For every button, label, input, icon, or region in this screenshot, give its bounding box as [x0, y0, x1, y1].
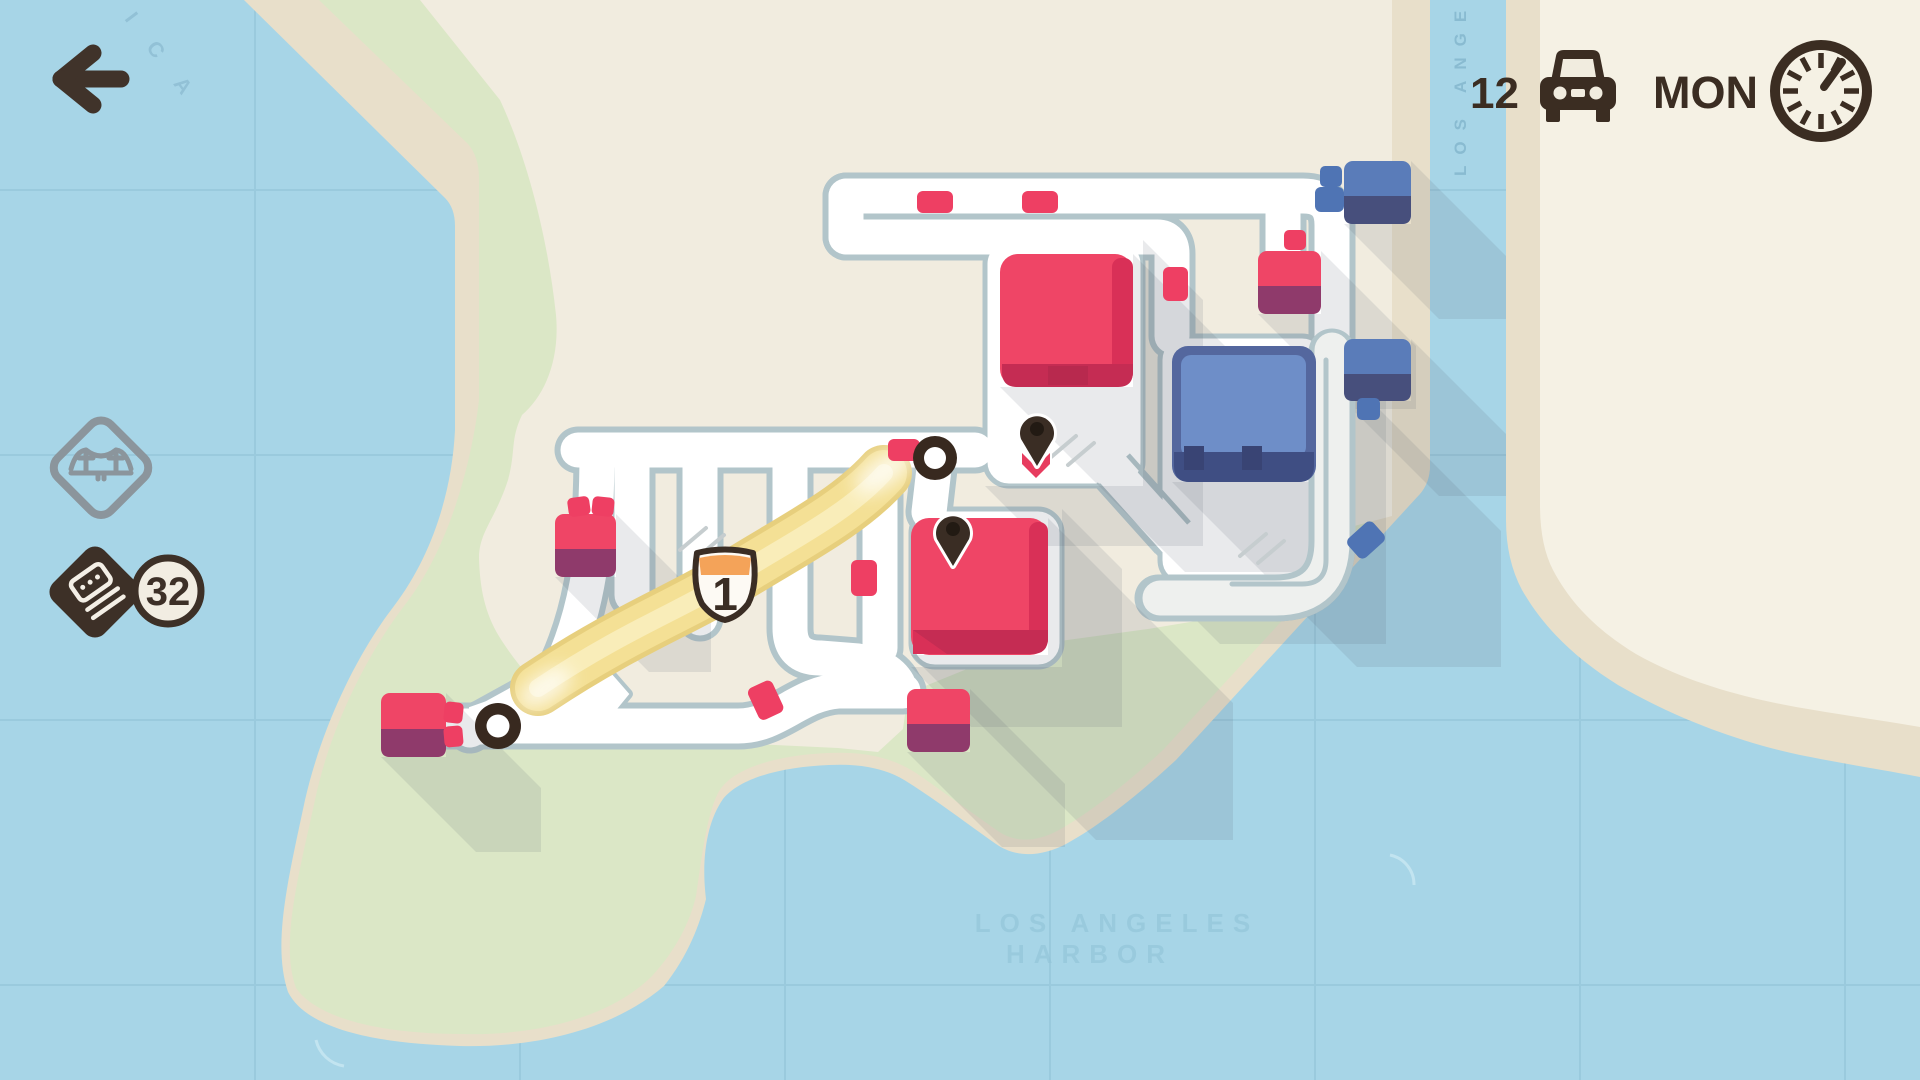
svg-text:1: 1 [712, 568, 738, 620]
svg-text:12: 12 [1470, 69, 1519, 118]
svg-text:32: 32 [146, 570, 191, 614]
svg-text:HARBOR: HARBOR [1006, 939, 1174, 969]
svg-text:LOS ANGELES: LOS ANGELES [1451, 0, 1470, 176]
svg-text:MON: MON [1653, 67, 1758, 118]
svg-text:LOS ANGELES: LOS ANGELES [975, 908, 1259, 938]
